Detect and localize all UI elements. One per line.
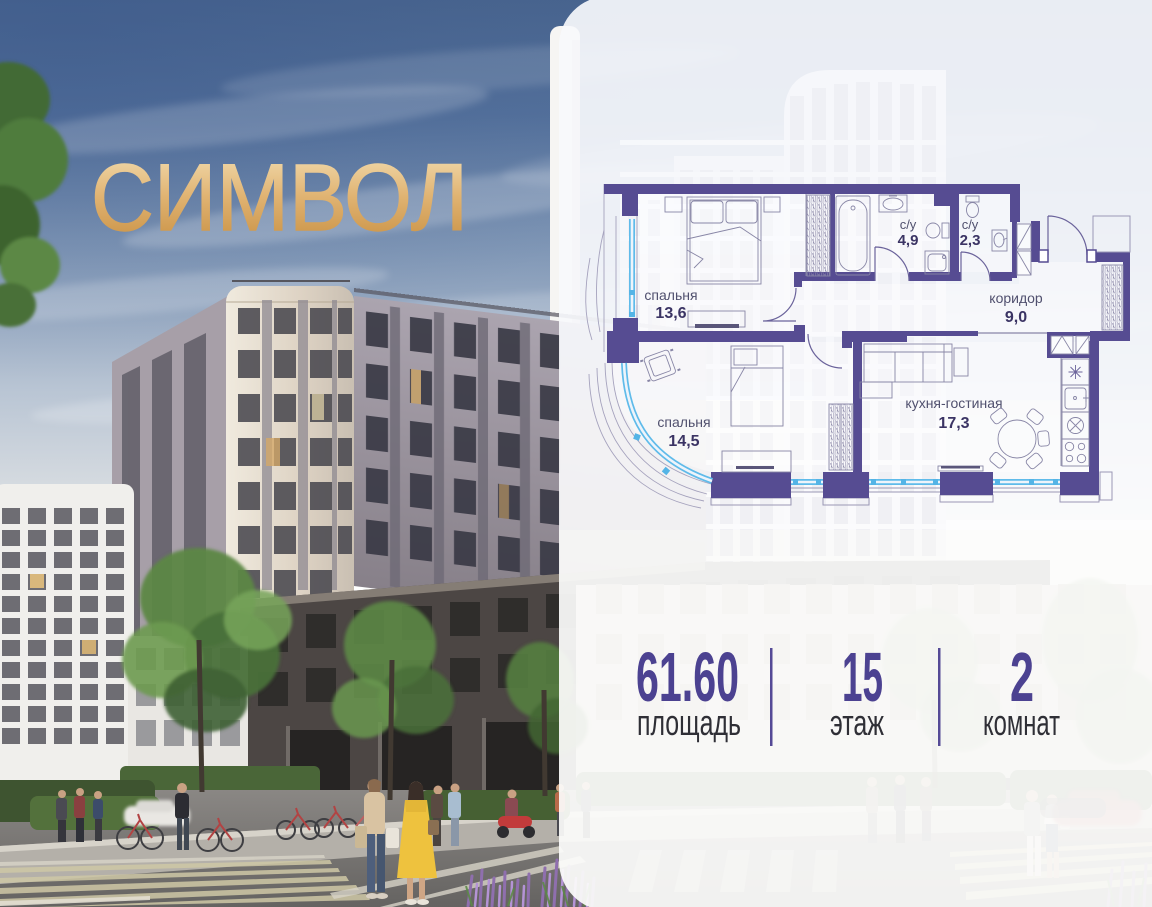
svg-text:спальня: спальня — [644, 287, 697, 303]
svg-text:2,3: 2,3 — [960, 232, 981, 249]
svg-text:13,6: 13,6 — [655, 305, 686, 322]
svg-text:с/у: с/у — [962, 217, 979, 232]
svg-text:9,0: 9,0 — [1005, 309, 1027, 326]
svg-text:СИМВОЛ: СИМВОЛ — [91, 145, 468, 251]
svg-text:17,3: 17,3 — [938, 415, 969, 432]
svg-text:с/у: с/у — [900, 217, 917, 232]
svg-text:4,9: 4,9 — [898, 232, 919, 249]
svg-text:комнат: комнат — [983, 702, 1060, 743]
svg-text:спальня: спальня — [657, 414, 710, 430]
svg-text:кухня-гостиная: кухня-гостиная — [905, 395, 1002, 411]
svg-text:коридор: коридор — [989, 290, 1043, 306]
svg-text:этаж: этаж — [830, 702, 884, 743]
svg-text:площадь: площадь — [637, 702, 741, 743]
svg-text:14,5: 14,5 — [668, 433, 699, 450]
